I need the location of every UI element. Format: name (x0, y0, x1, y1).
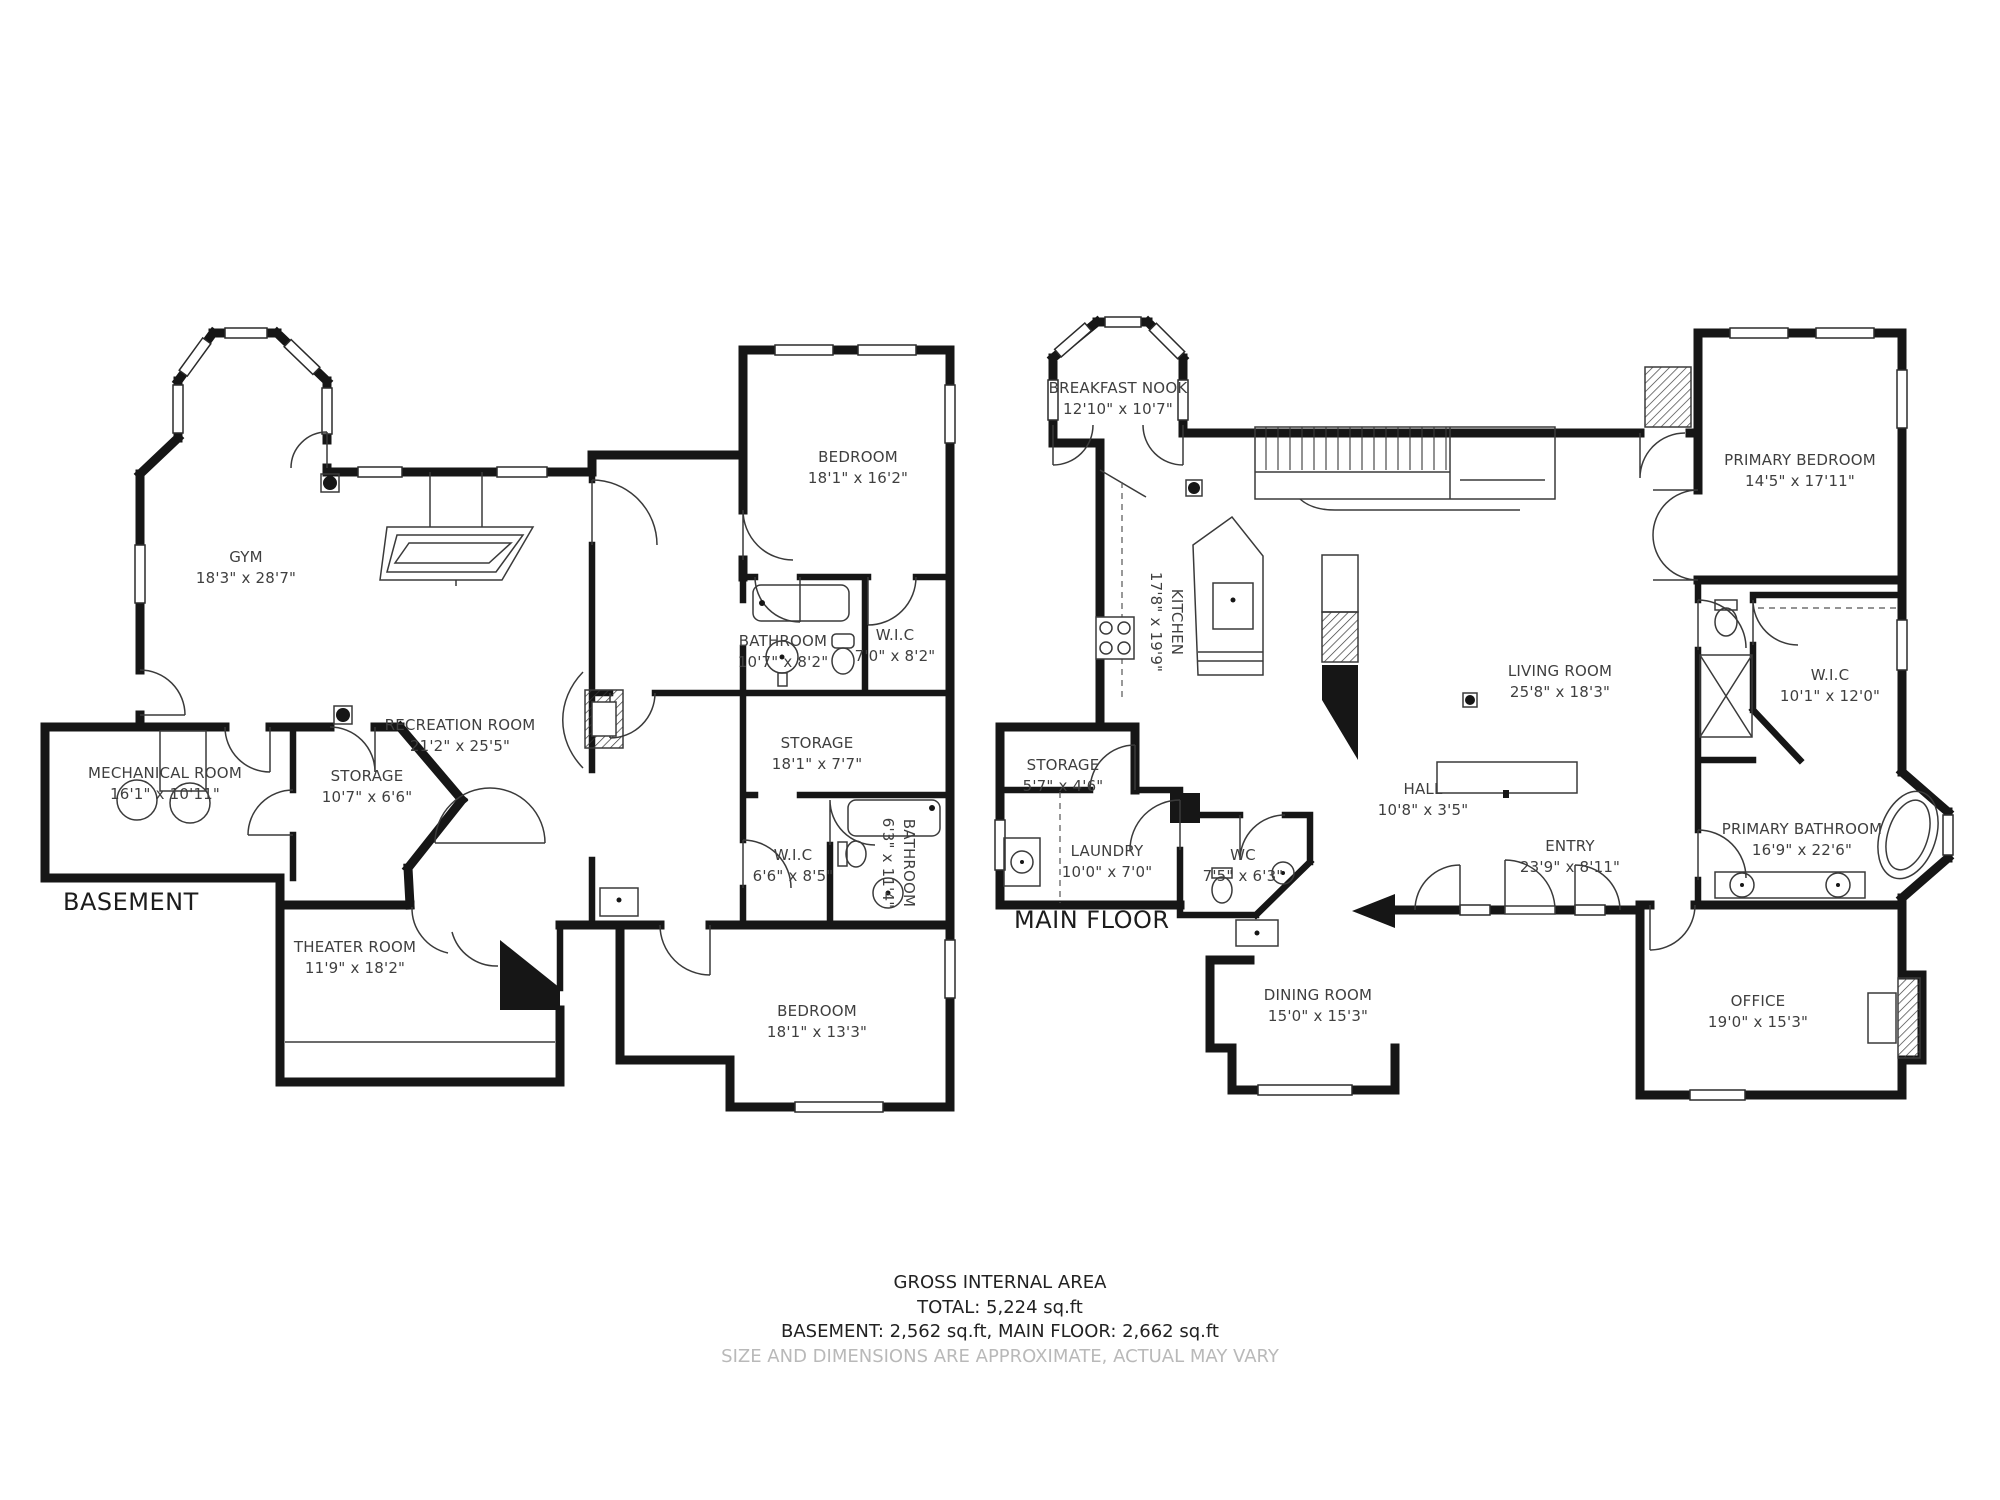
room-label-dining-room: DINING ROOM 15'0" x 15'3" (1264, 985, 1372, 1027)
floorplan-page: GYM 18'3" x 28'7" BEDROOM 18'1" x 16'2" … (0, 0, 2000, 1500)
room-label-office: OFFICE 19'0" x 15'3" (1708, 991, 1808, 1033)
basement-doors (140, 432, 916, 975)
room-label-wic-main: W.I.C 10'1" x 12'0" (1780, 665, 1880, 707)
main-floor-doors (1053, 425, 1798, 950)
room-label-kitchen: KITCHEN 17'8" x 19'9" (1145, 572, 1187, 672)
footer-floor-areas: BASEMENT: 2,562 sq.ft, MAIN FLOOR: 2,662… (0, 1320, 2000, 1345)
room-label-wc: WC 7'5" x 6'3" (1203, 845, 1284, 887)
room-label-wic-2: W.I.C 6'6" x 8'5" (753, 845, 834, 887)
main-floor-stairs (1255, 427, 1555, 510)
room-label-laundry: LAUNDRY 10'0" x 7'0" (1062, 841, 1153, 883)
room-label-storage-large: STORAGE 18'1" x 7'7" (772, 733, 863, 775)
room-label-theater-room: THEATER ROOM 11'9" x 18'2" (294, 937, 416, 979)
footer-area-summary: GROSS INTERNAL AREA TOTAL: 5,224 sq.ft B… (0, 1271, 2000, 1369)
room-label-primary-bathroom: PRIMARY BATHROOM 16'9" x 22'6" (1722, 819, 1883, 861)
room-label-storage-main: STORAGE 5'7" x 4'6" (1023, 755, 1104, 797)
footer-disclaimer: SIZE AND DIMENSIONS ARE APPROXIMATE, ACT… (0, 1345, 2000, 1370)
main-floor-walls (1000, 322, 1948, 1095)
floor-title-basement: BASEMENT (63, 888, 199, 916)
room-label-bathroom-1: BATHROOM 10'7" x 8'2" (738, 631, 829, 673)
room-label-living-room: LIVING ROOM 25'8" x 18'3" (1508, 661, 1612, 703)
room-label-entry: ENTRY 23'9" x 8'11" (1520, 836, 1620, 878)
room-label-hall: HALL 10'8" x 3'5" (1378, 779, 1469, 821)
room-label-bedroom-2: BEDROOM 18'1" x 13'3" (767, 1001, 867, 1043)
room-label-bedroom-1: BEDROOM 18'1" x 16'2" (808, 447, 908, 489)
room-label-wic-1: W.I.C 7'0" x 8'2" (855, 625, 936, 667)
floor-title-main-floor: MAIN FLOOR (1014, 906, 1170, 934)
room-label-gym: GYM 18'3" x 28'7" (196, 547, 296, 589)
footer-total-area: TOTAL: 5,224 sq.ft (0, 1296, 2000, 1321)
room-label-bathroom-2: BATHROOM 6'3" x 11'4" (877, 818, 919, 909)
room-label-primary-bedroom: PRIMARY BEDROOM 14'5" x 17'11" (1724, 450, 1876, 492)
room-label-storage-small: STORAGE 10'7" x 6'6" (322, 766, 413, 808)
room-label-breakfast-nook: BREAKFAST NOOK 12'10" x 10'7" (1049, 378, 1188, 420)
footer-gross-internal-area: GROSS INTERNAL AREA (0, 1271, 2000, 1296)
room-label-recreation-room: RECREATION ROOM 21'2" x 25'5" (385, 715, 536, 757)
room-label-mechanical-room: MECHANICAL ROOM 16'1" x 10'11" (88, 763, 242, 805)
